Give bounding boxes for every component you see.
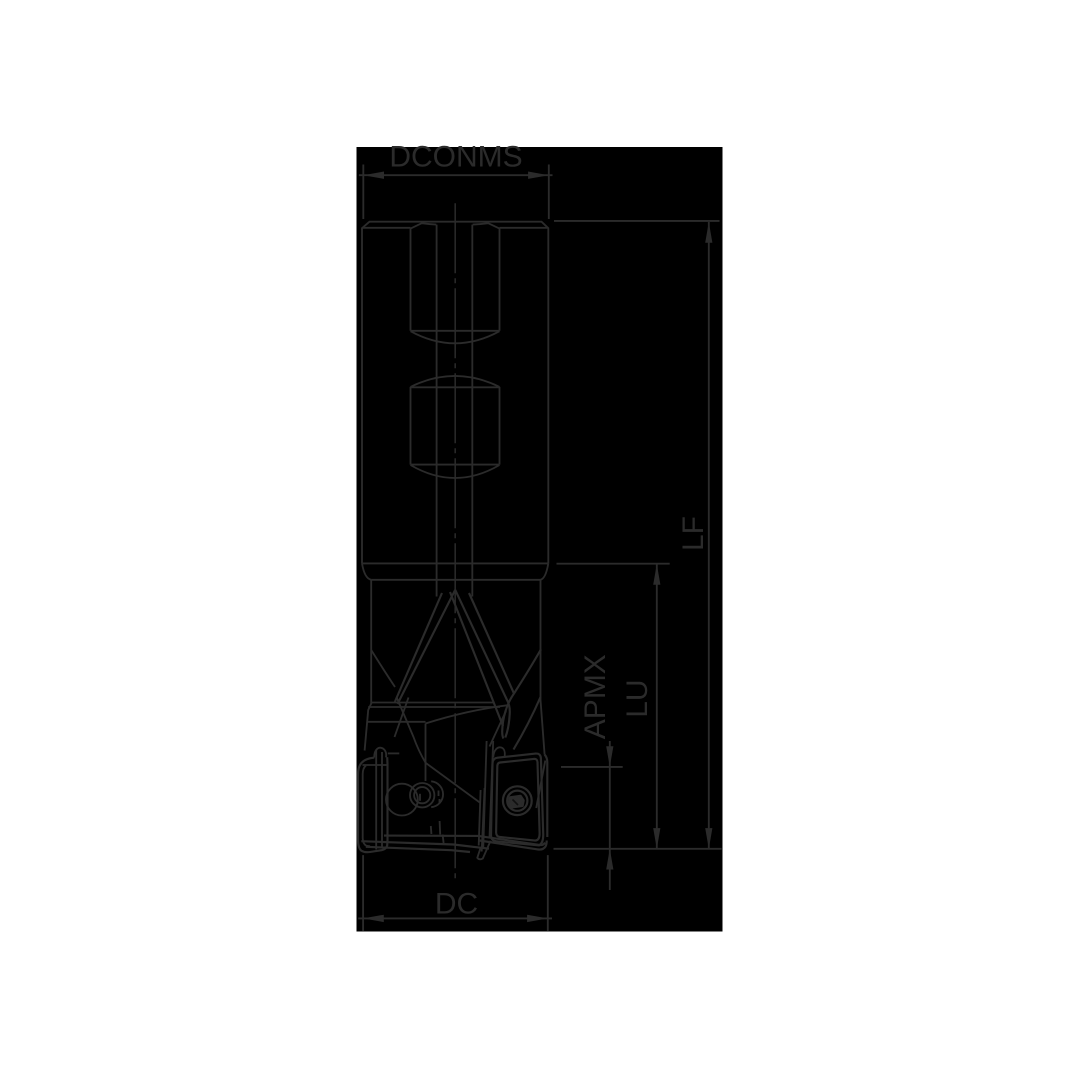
svg-text:LU: LU <box>621 679 654 717</box>
svg-text:LF: LF <box>677 516 710 551</box>
svg-text:DC: DC <box>435 887 478 920</box>
svg-text:APMX: APMX <box>579 654 612 739</box>
svg-text:DCONMS: DCONMS <box>389 141 522 174</box>
